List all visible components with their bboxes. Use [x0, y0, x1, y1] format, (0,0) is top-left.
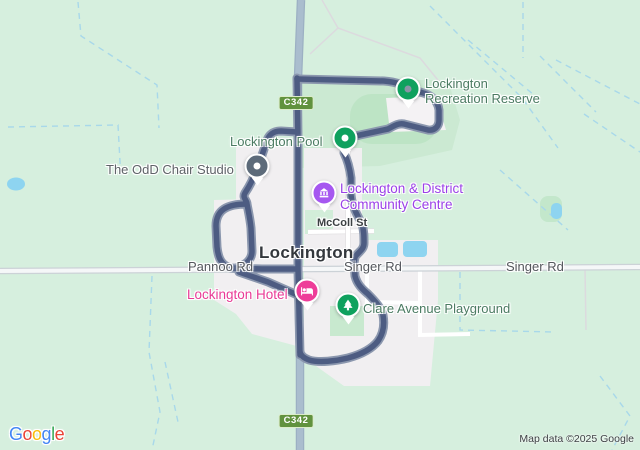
waypoint-dot-icon	[254, 163, 261, 170]
singer-rd-label: Singer Rd	[344, 260, 402, 275]
pool-label[interactable]: Lockington Pool	[230, 135, 323, 150]
recreation-reserve-label[interactable]: Lockington Recreation Reserve	[425, 77, 540, 107]
singer-rd-east-label: Singer Rd	[506, 260, 564, 275]
town-label: Lockington	[259, 243, 354, 263]
waypoint-dot-icon	[405, 86, 412, 93]
hotel-label[interactable]: Lockington Hotel	[187, 287, 288, 303]
mccoll-st-label: McColl St	[317, 217, 367, 230]
map-canvas[interactable]: Lockington Recreation Reserve Lockington…	[0, 0, 640, 450]
chair-studio-label[interactable]: The OdD Chair Studio	[106, 163, 234, 178]
building-icon	[318, 187, 331, 200]
pool-marker[interactable]	[333, 126, 358, 151]
route-main	[297, 78, 300, 355]
playground-marker[interactable]	[336, 293, 361, 318]
recreation-reserve-marker[interactable]	[396, 77, 421, 102]
map-attribution: Map data ©2025 Google	[519, 433, 634, 445]
pannoo-rd-label: Pannoo Rd	[188, 260, 253, 275]
waypoint-dot-icon	[342, 135, 349, 142]
hotel-marker[interactable]	[295, 279, 320, 304]
tree-icon	[342, 299, 355, 312]
c342-shield-north: C342	[279, 96, 314, 110]
bed-icon	[301, 285, 314, 298]
c342-shield-south: C342	[279, 414, 314, 428]
playground-label[interactable]: Clare Avenue Playground	[363, 302, 510, 317]
chair-studio-marker[interactable]	[245, 154, 270, 179]
community-centre-label[interactable]: Lockington & District Community Centre	[340, 181, 463, 212]
google-logo[interactable]: Google	[9, 424, 64, 445]
community-centre-marker[interactable]	[312, 181, 337, 206]
